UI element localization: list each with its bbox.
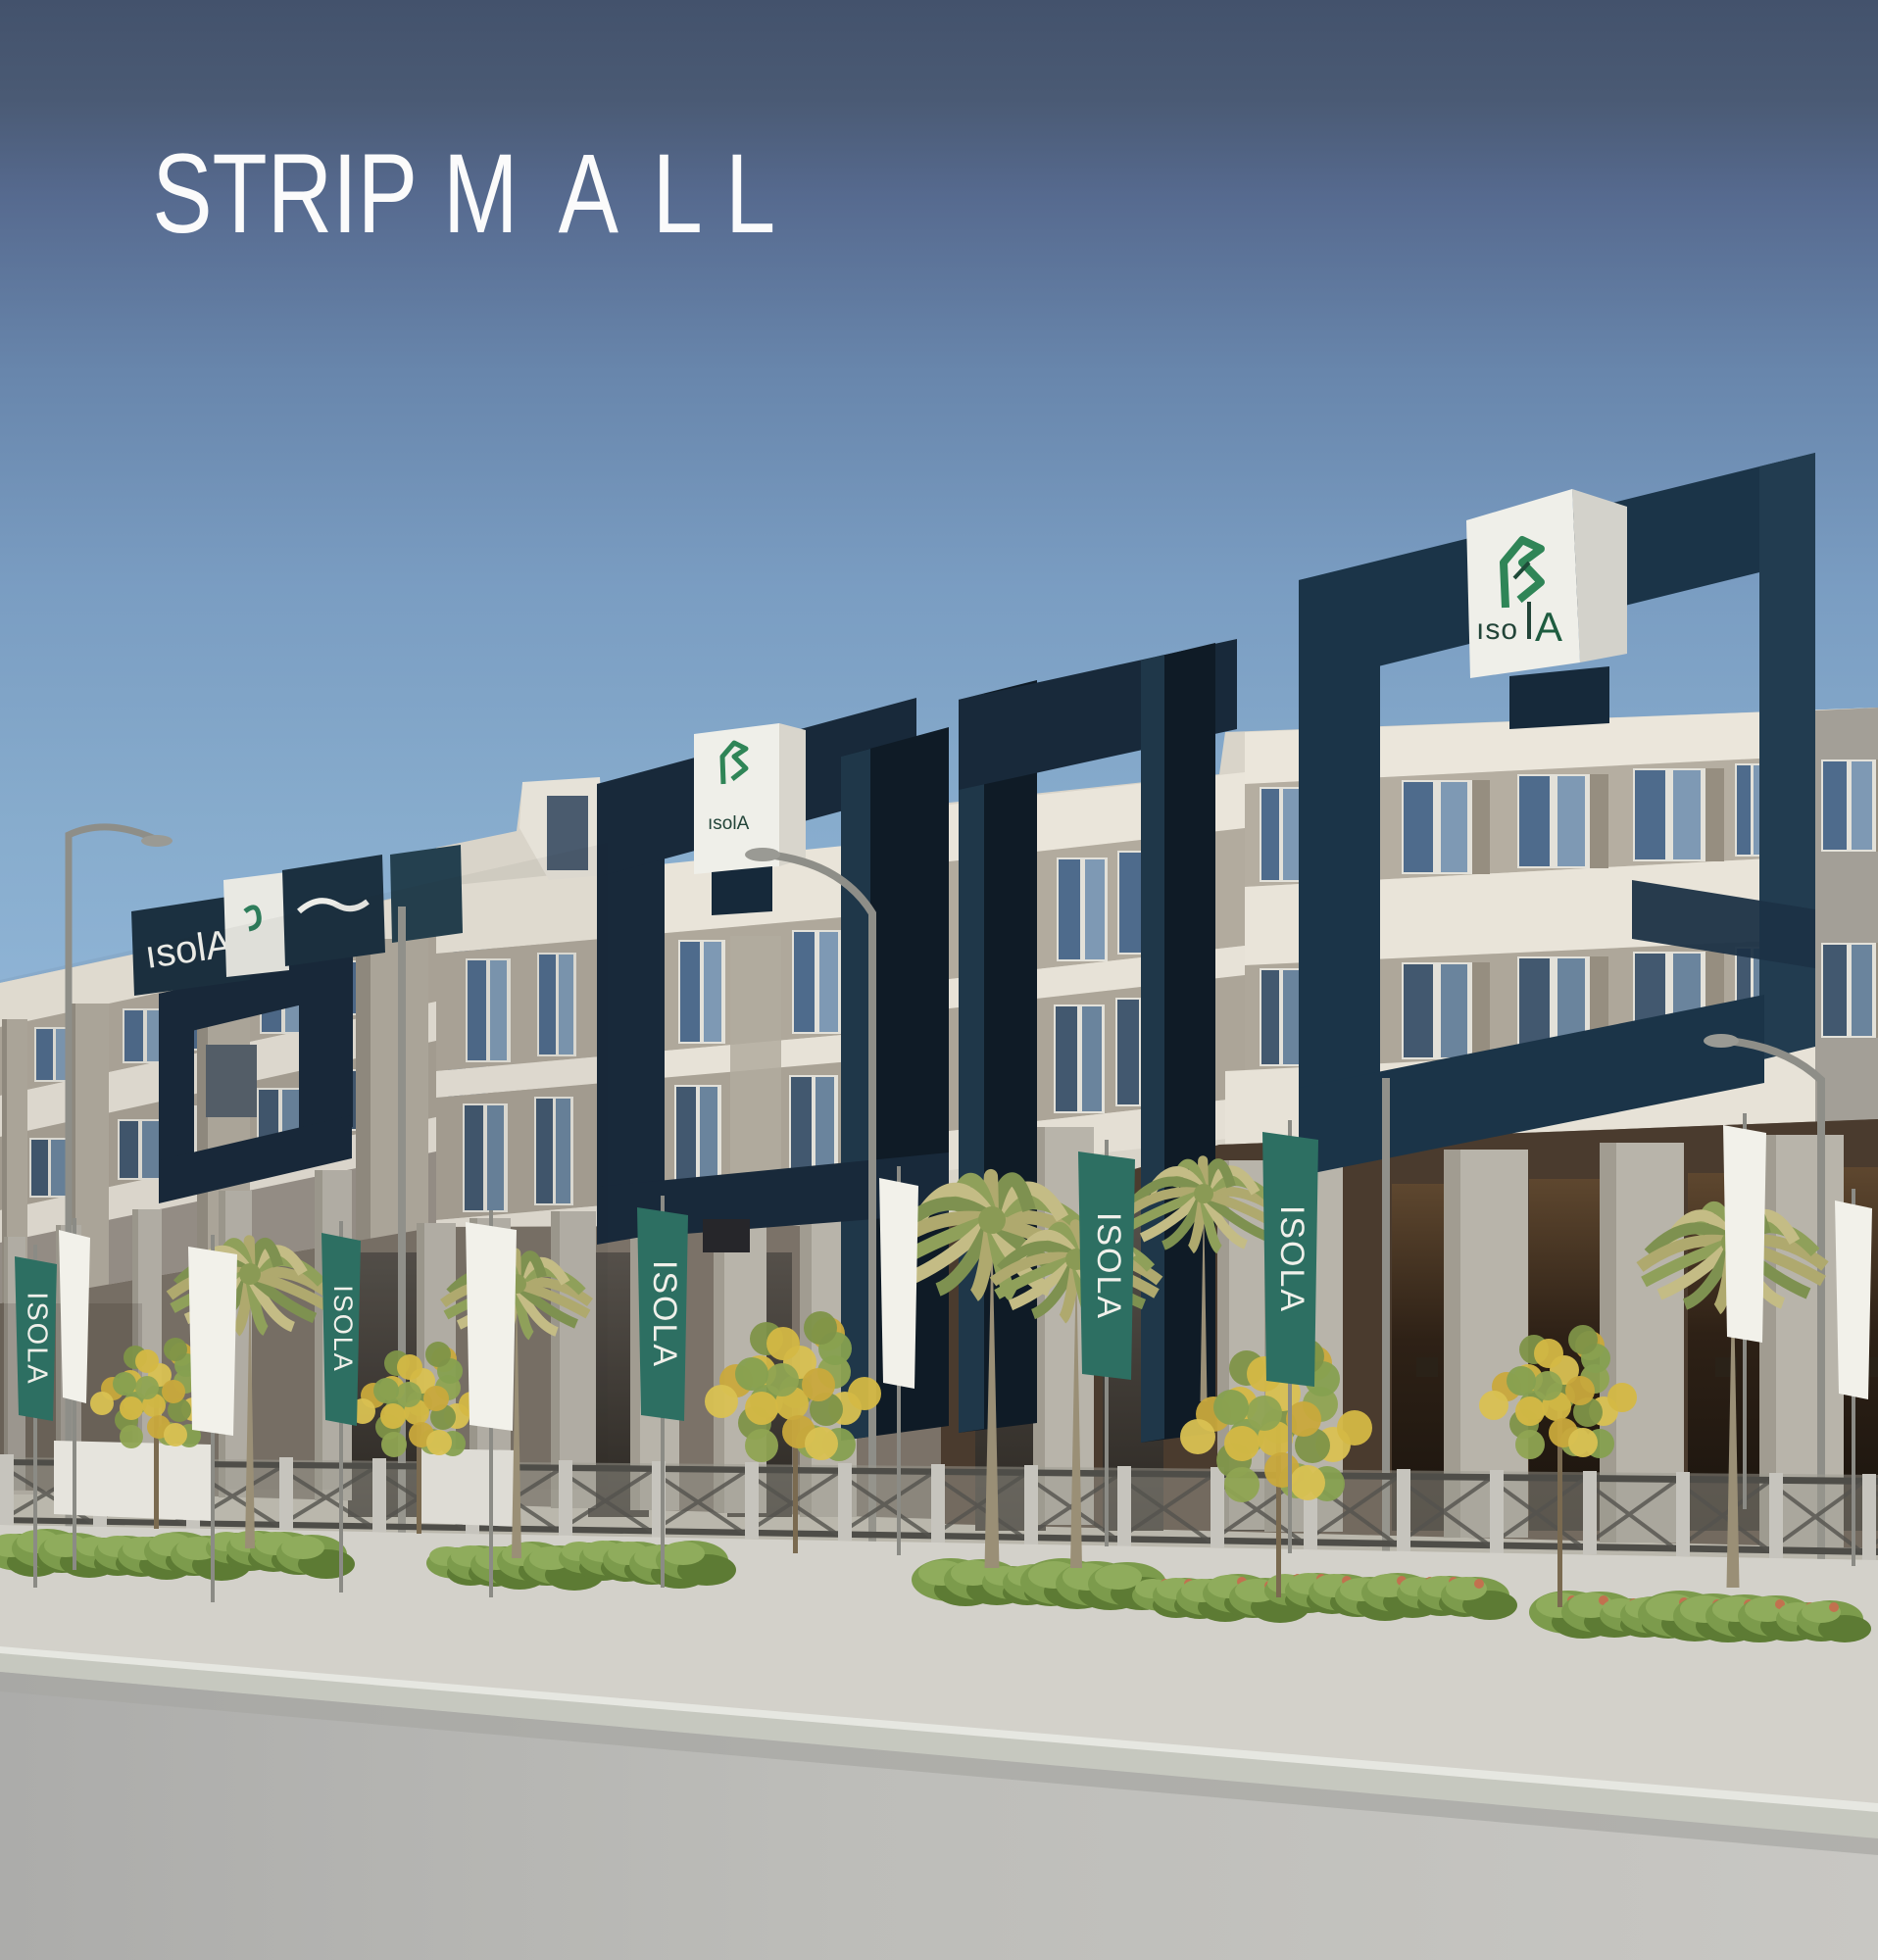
svg-text:ISOLA: ISOLA bbox=[328, 1285, 358, 1373]
svg-text:ISOLA: ISOLA bbox=[646, 1260, 683, 1368]
svg-text:ıso: ıso bbox=[1476, 613, 1518, 646]
svg-text:A: A bbox=[559, 131, 619, 257]
svg-text:STRIP: STRIP bbox=[152, 131, 418, 257]
svg-text:ISOLA: ISOLA bbox=[21, 1292, 52, 1385]
svg-text:ısolA: ısolA bbox=[708, 813, 750, 834]
svg-text:ISOLA: ISOLA bbox=[1090, 1212, 1127, 1320]
svg-text:M: M bbox=[443, 131, 519, 257]
svg-text:ISOLA: ISOLA bbox=[1273, 1205, 1310, 1313]
svg-text:L: L bbox=[653, 131, 703, 257]
svg-text:A: A bbox=[1535, 604, 1562, 650]
svg-text:L: L bbox=[725, 131, 775, 257]
